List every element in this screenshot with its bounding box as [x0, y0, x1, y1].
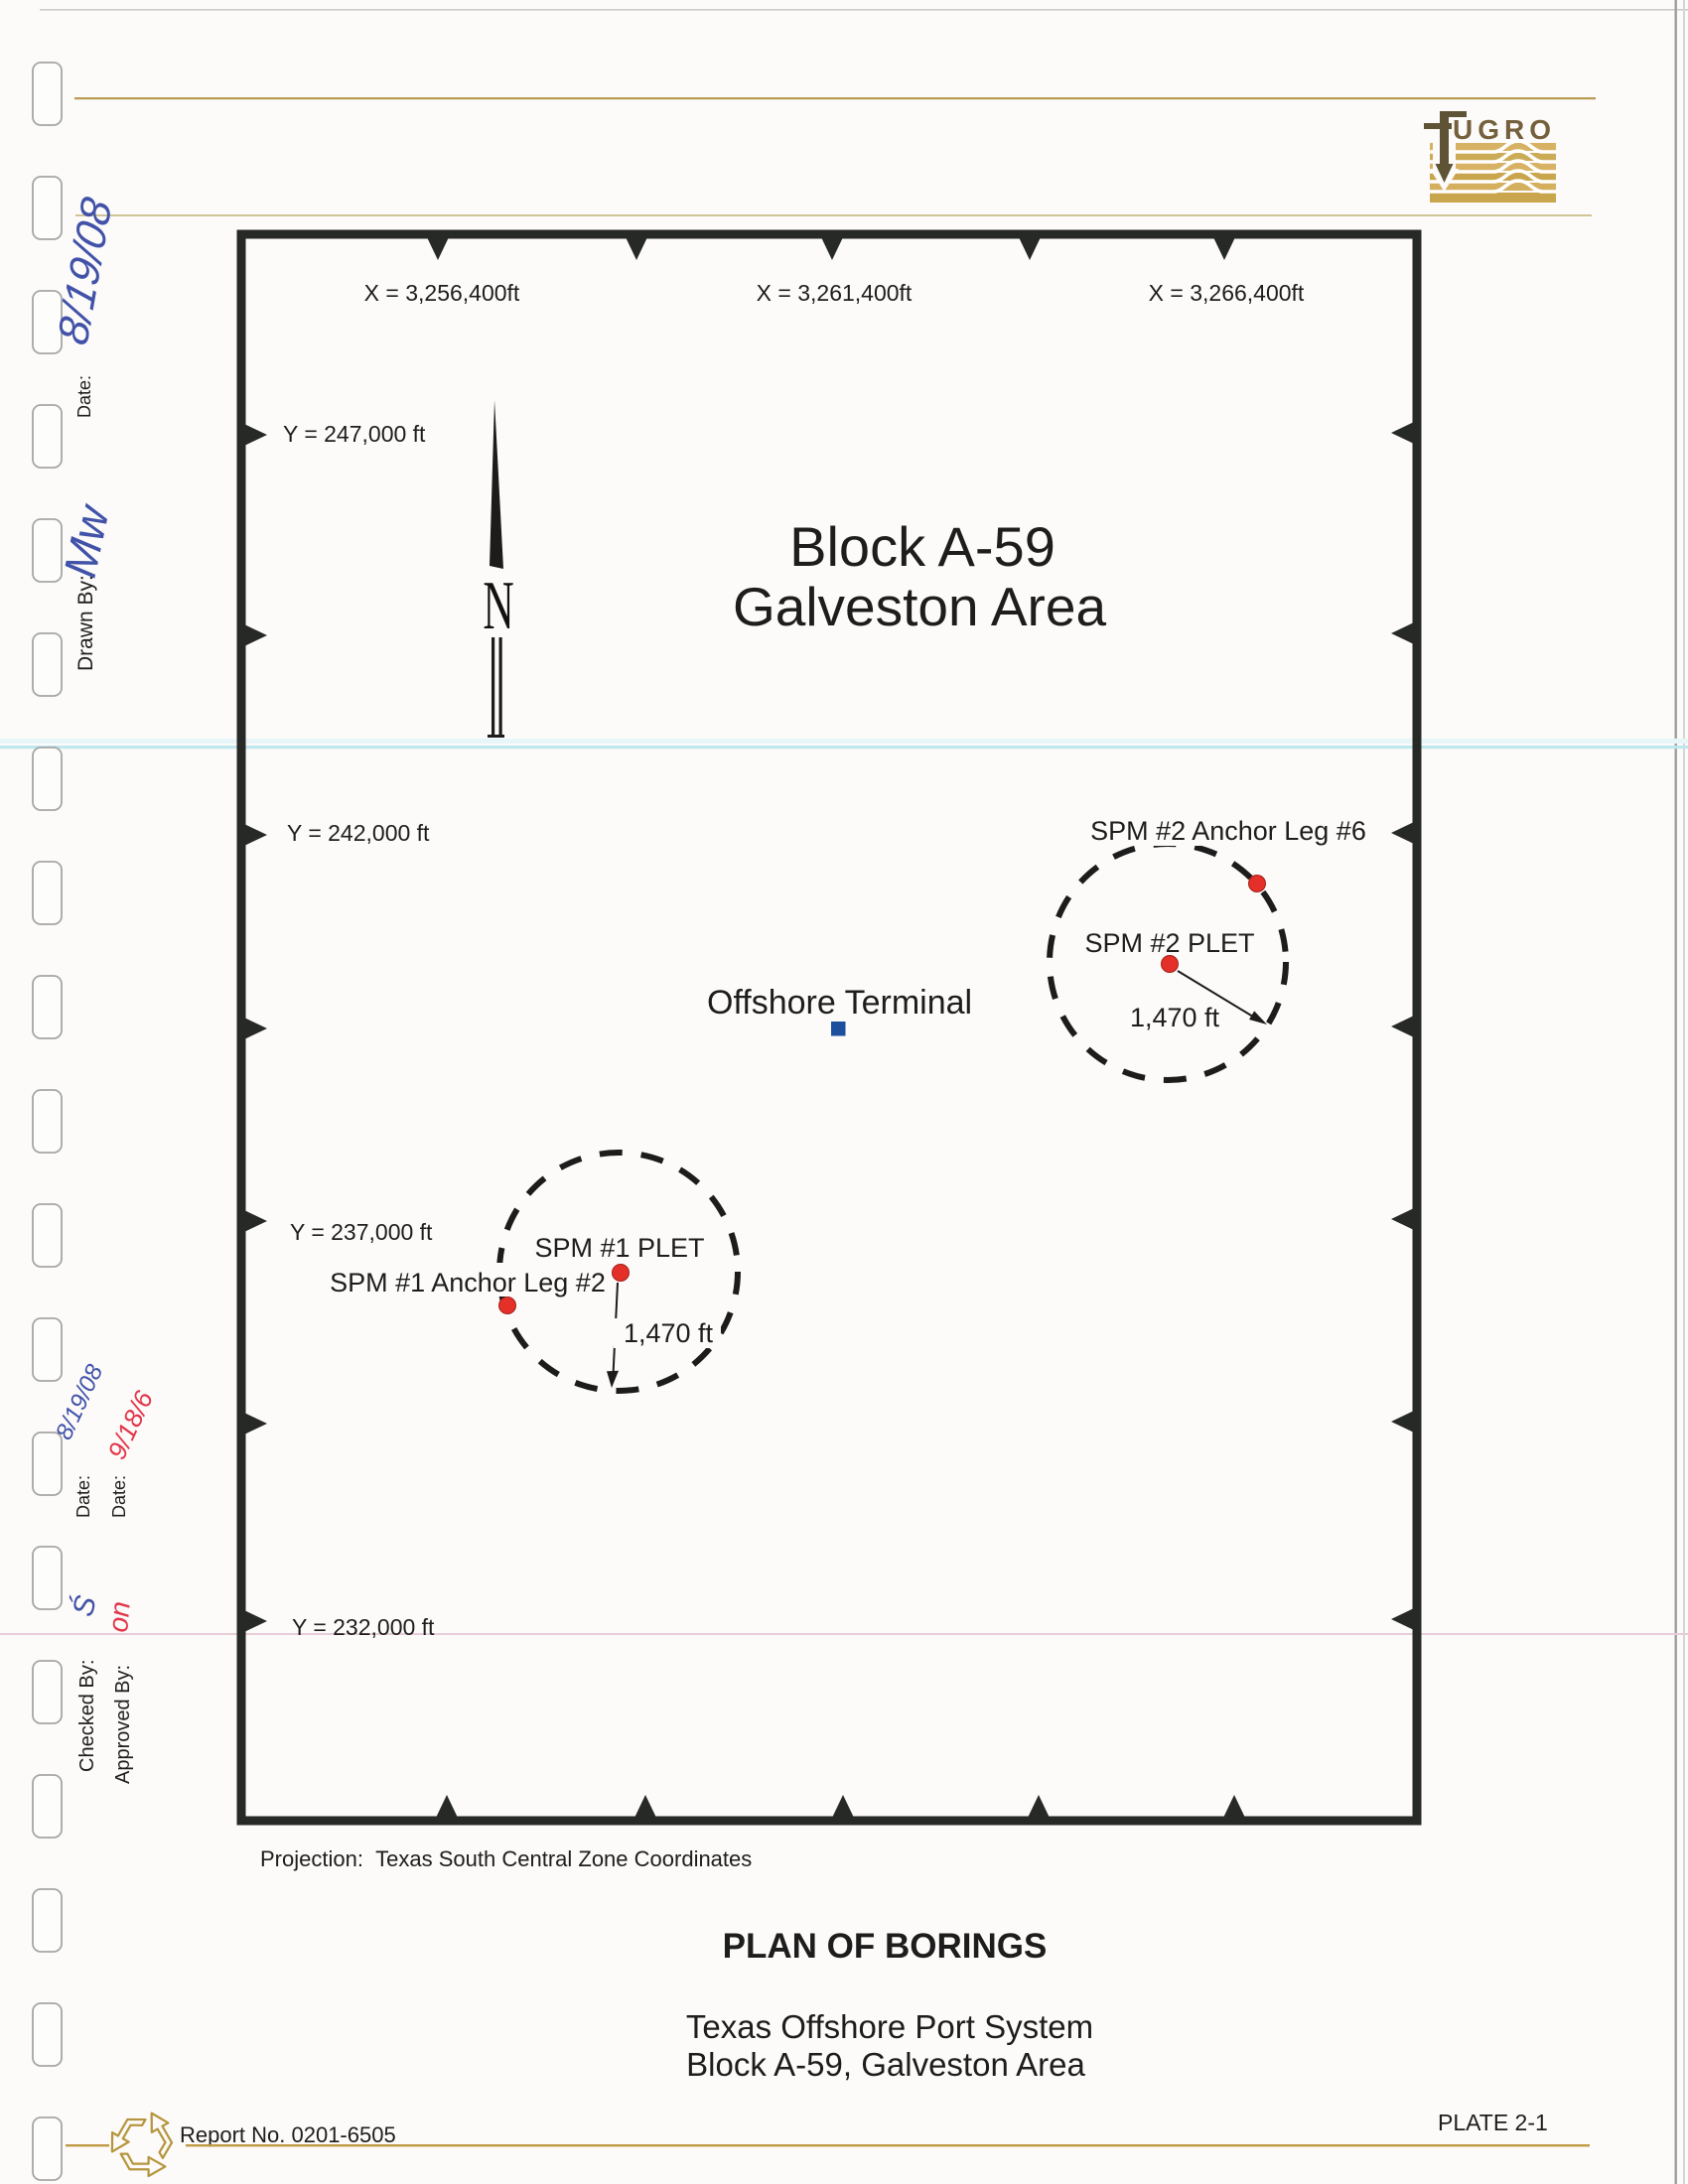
svg-text:Date:: Date:: [74, 375, 94, 418]
svg-text:on: on: [102, 1600, 136, 1634]
svg-text:UGRO: UGRO: [1453, 114, 1556, 145]
svg-text:Y = 247,000 ft: Y = 247,000 ft: [283, 421, 426, 447]
svg-text:Checked By:: Checked By:: [76, 1660, 98, 1772]
svg-text:1,470 ft: 1,470 ft: [1130, 1003, 1220, 1032]
svg-text:X = 3,266,400ft: X = 3,266,400ft: [1149, 280, 1305, 306]
svg-text:Block A-59: Block A-59: [789, 515, 1055, 578]
svg-text:X = 3,261,400ft: X = 3,261,400ft: [757, 280, 913, 306]
svg-text:Projection: Texas South Centr: Projection: Texas South Central Zone Coo…: [260, 1846, 752, 1871]
svg-text:Date:: Date:: [73, 1475, 93, 1518]
svg-text:SPM #2 Anchor Leg #6: SPM #2 Anchor Leg #6: [1090, 816, 1366, 846]
svg-text:Texas Offshore Port System: Texas Offshore Port System: [686, 2008, 1093, 2045]
svg-text:PLAN OF BORINGS: PLAN OF BORINGS: [723, 1927, 1048, 1966]
svg-text:PLATE 2-1: PLATE 2-1: [1438, 2110, 1548, 2135]
svg-text:N: N: [483, 566, 513, 643]
svg-text:Offshore Terminal: Offshore Terminal: [707, 984, 972, 1022]
svg-text:SPM #1 PLET: SPM #1 PLET: [534, 1233, 704, 1263]
svg-text:Report No. 0201-6505: Report No. 0201-6505: [180, 2122, 396, 2147]
svg-text:Galveston Area: Galveston Area: [733, 576, 1106, 637]
svg-text:Block A-59, Galveston Area: Block A-59, Galveston Area: [686, 2046, 1085, 2083]
svg-text:SPM #1 Anchor Leg #2: SPM #1 Anchor Leg #2: [330, 1268, 606, 1297]
svg-text:Date:: Date:: [109, 1475, 129, 1518]
svg-text:X = 3,256,400ft: X = 3,256,400ft: [364, 280, 520, 306]
svg-text:Y = 242,000 ft: Y = 242,000 ft: [287, 820, 430, 846]
svg-text:1,470 ft: 1,470 ft: [624, 1318, 714, 1348]
svg-text:Y = 237,000 ft: Y = 237,000 ft: [290, 1219, 433, 1245]
svg-text:SPM #2 PLET: SPM #2 PLET: [1084, 928, 1254, 958]
svg-text:Approved By:: Approved By:: [112, 1665, 134, 1784]
svg-text:Drawn By:: Drawn By:: [74, 575, 97, 671]
svg-text:Y = 232,000 ft: Y = 232,000 ft: [292, 1614, 435, 1640]
